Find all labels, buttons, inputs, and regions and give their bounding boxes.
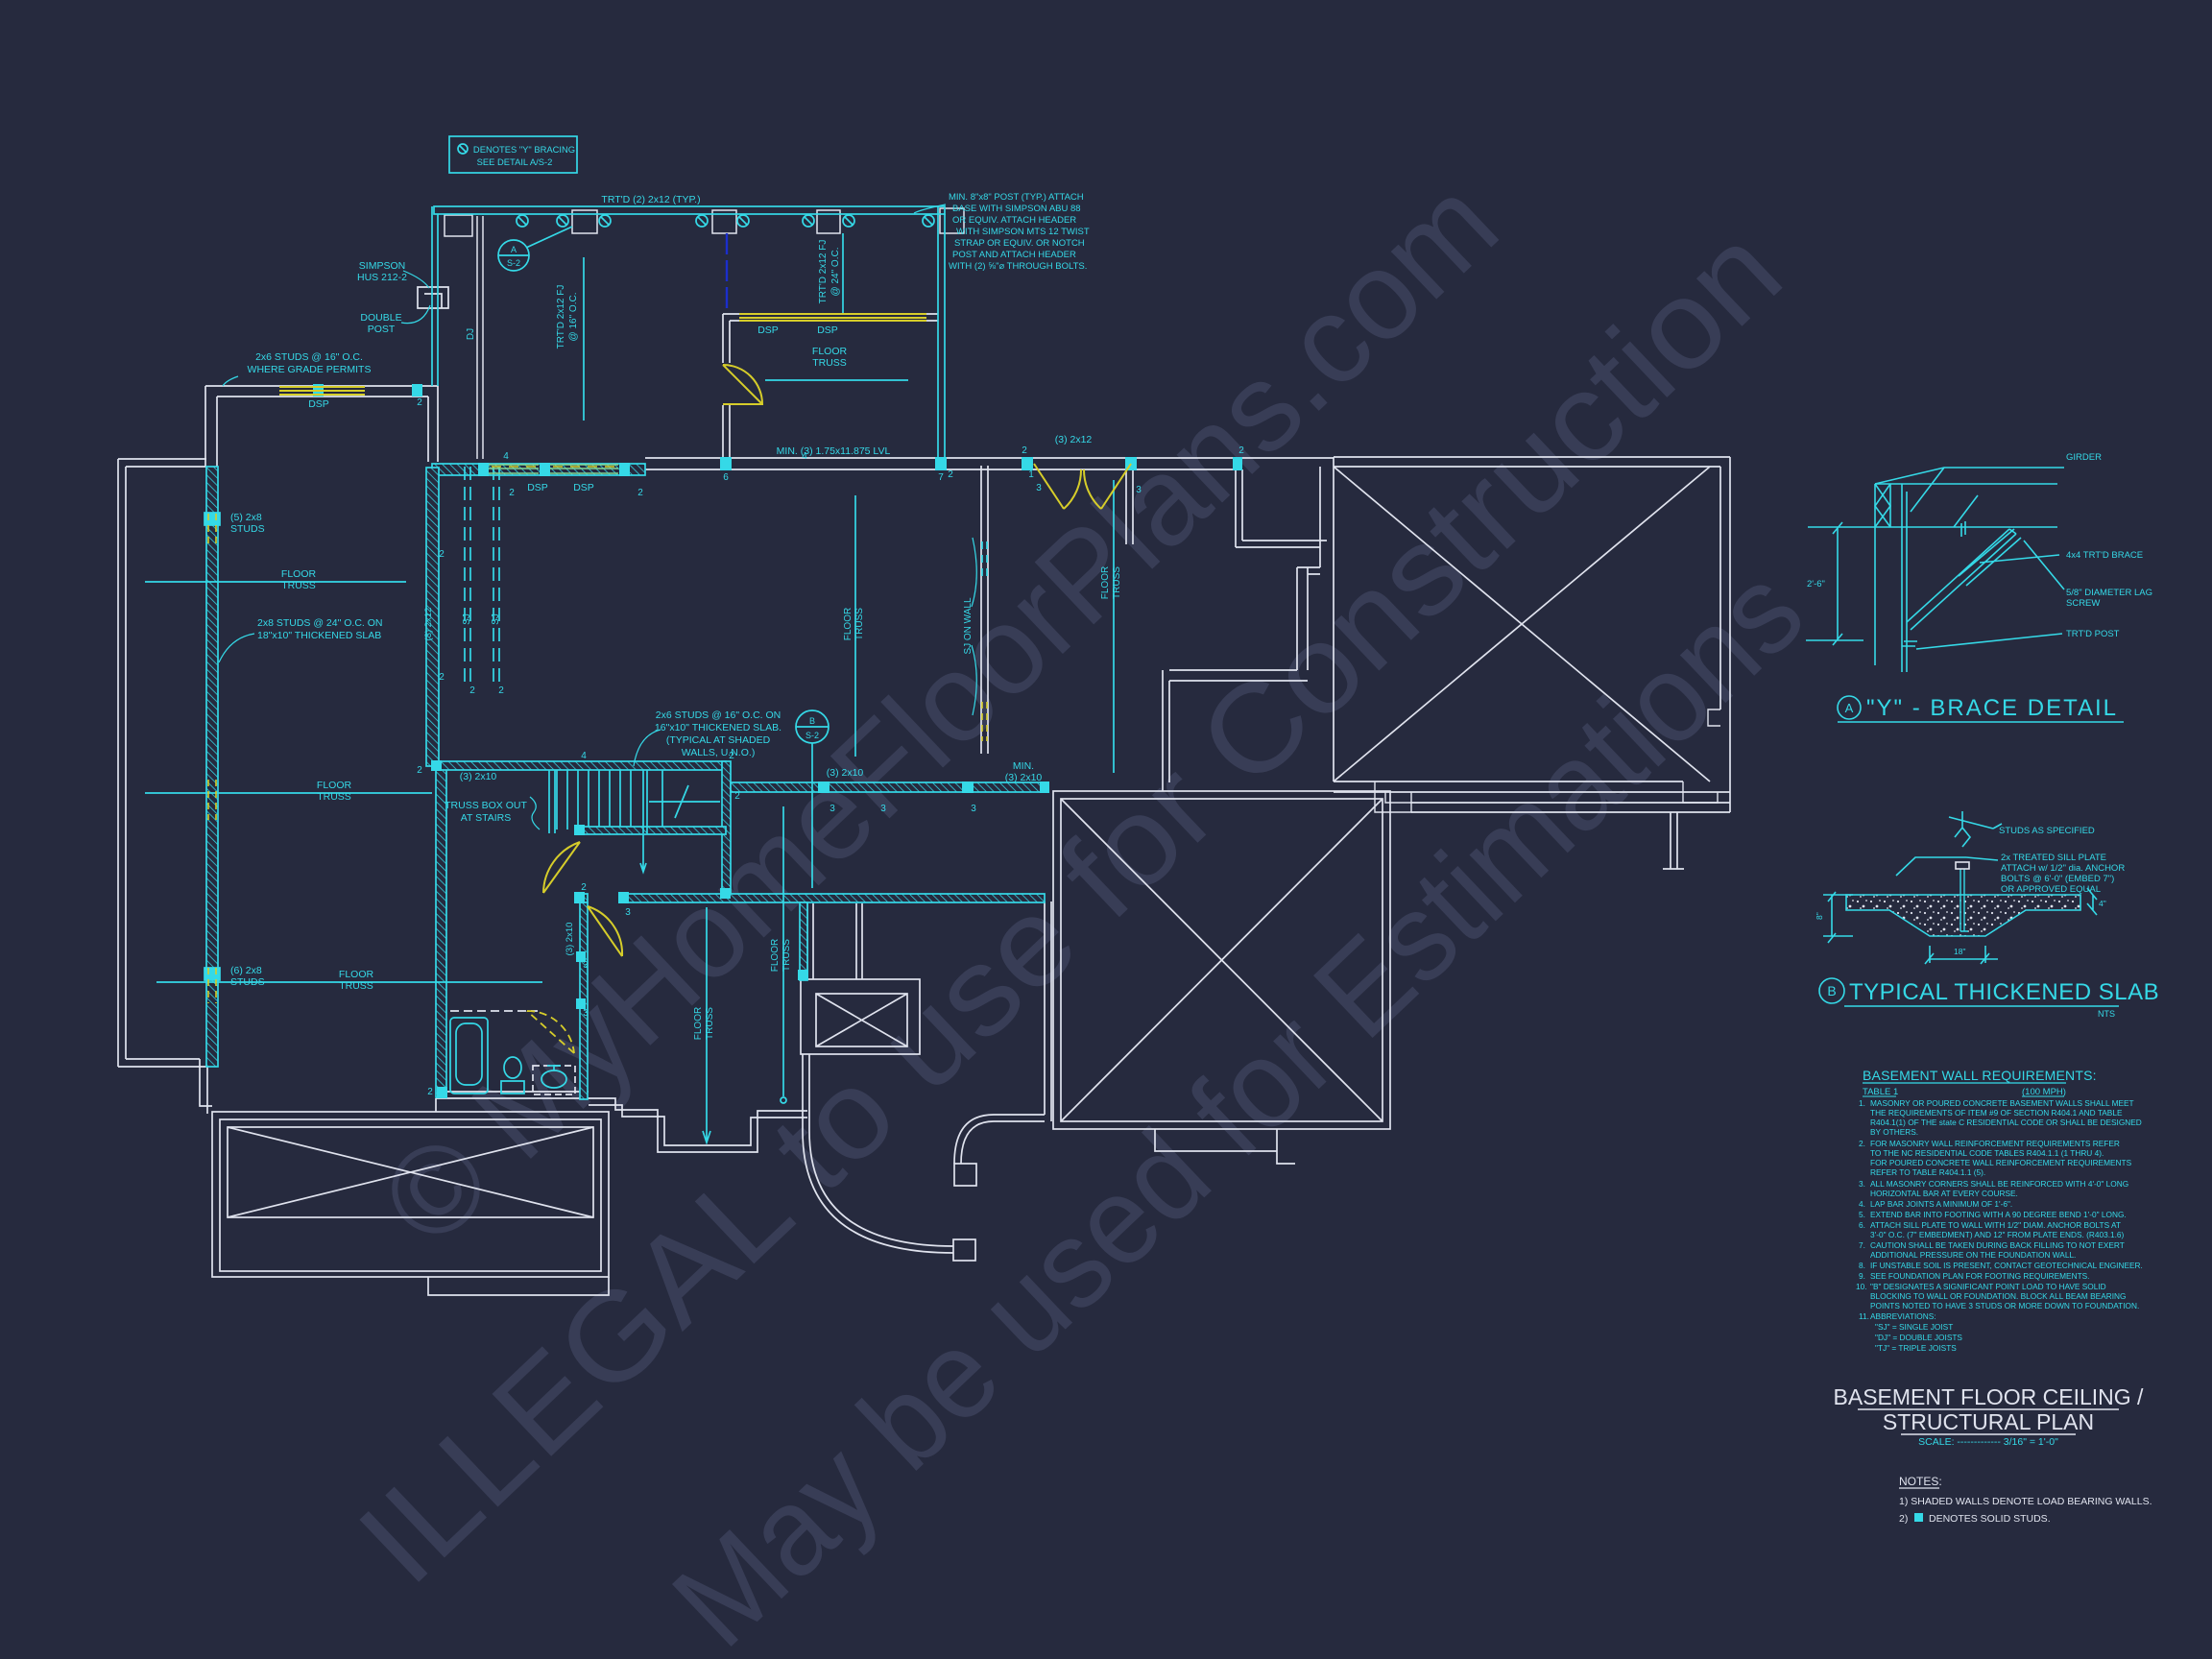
svg-text:2: 2 xyxy=(469,685,475,696)
svg-text:4": 4" xyxy=(2099,899,2106,908)
svg-text:3: 3 xyxy=(971,804,976,814)
svg-text:GIRDER: GIRDER xyxy=(2066,452,2102,463)
svg-text:WITH (2) ⅝"⌀ THROUGH BOLTS.: WITH (2) ⅝"⌀ THROUGH BOLTS. xyxy=(949,261,1087,272)
svg-text:@ 24" O.C.: @ 24" O.C. xyxy=(830,248,841,297)
svg-text:A: A xyxy=(511,245,517,254)
svg-text:FLOOR: FLOOR xyxy=(339,969,374,980)
svg-text:POINTS NOTED TO HAVE 3 STUDS O: POINTS NOTED TO HAVE 3 STUDS OR MORE DOW… xyxy=(1870,1301,2139,1310)
svg-text:(3) 2x12: (3) 2x12 xyxy=(423,608,434,641)
svg-text:18"x10" THICKENED SLAB: 18"x10" THICKENED SLAB xyxy=(257,630,381,641)
svg-text:6: 6 xyxy=(723,472,729,483)
svg-text:11.: 11. xyxy=(1859,1311,1869,1321)
svg-text:@ 16" O.C.: @ 16" O.C. xyxy=(568,293,579,342)
svg-text:(3) 2x10: (3) 2x10 xyxy=(460,771,497,782)
svg-text:REFER TO TABLE R404.1.1 (5).: REFER TO TABLE R404.1.1 (5). xyxy=(1870,1167,1985,1177)
svg-text:FLOOR: FLOOR xyxy=(317,780,352,791)
svg-text:4.: 4. xyxy=(1859,1199,1865,1209)
svg-text:2: 2 xyxy=(637,488,643,498)
svg-text:DOUBLE: DOUBLE xyxy=(360,312,401,324)
svg-text:WITH SIMPSON MTS 12 TWIST: WITH SIMPSON MTS 12 TWIST xyxy=(956,227,1090,237)
svg-text:7: 7 xyxy=(938,472,944,483)
svg-text:"SJ" = SINGLE JOIST: "SJ" = SINGLE JOIST xyxy=(1875,1322,1953,1332)
svg-text:FLOOR: FLOOR xyxy=(281,568,317,580)
svg-text:4: 4 xyxy=(503,451,509,462)
svg-text:8.: 8. xyxy=(1859,1261,1865,1270)
svg-text:MIN. 8"x8" POST (TYP.) ATTACH: MIN. 8"x8" POST (TYP.) ATTACH xyxy=(949,192,1084,203)
svg-text:(6) 2x8: (6) 2x8 xyxy=(230,965,262,976)
svg-text:ALL MASONRY CORNERS SHALL BE R: ALL MASONRY CORNERS SHALL BE REINFORCED … xyxy=(1870,1179,2128,1189)
svg-text:FLOOR: FLOOR xyxy=(693,1007,704,1040)
svg-text:2: 2 xyxy=(498,685,504,696)
svg-text:S-2: S-2 xyxy=(805,731,819,740)
svg-text:R404.1(1) OF THE state C RESID: R404.1(1) OF THE state C RESIDENTIAL COD… xyxy=(1870,1118,2142,1127)
svg-text:CAUTION SHALL BE TAKEN DURING: CAUTION SHALL BE TAKEN DURING BACK FILLI… xyxy=(1870,1240,2125,1250)
svg-text:(TYPICAL AT SHADED: (TYPICAL AT SHADED xyxy=(666,734,771,746)
svg-text:2: 2 xyxy=(1022,445,1027,456)
svg-text:2x6 STUDS @ 16" O.C.: 2x6 STUDS @ 16" O.C. xyxy=(255,351,363,363)
svg-text:DSP: DSP xyxy=(527,482,548,493)
svg-text:FOR POURED CONCRETE WALL REINF: FOR POURED CONCRETE WALL REINFORCEMENT R… xyxy=(1870,1158,2132,1167)
svg-text:THE REQUIREMENTS OF ITEM #9 OF: THE REQUIREMENTS OF ITEM #9 OF SECTION R… xyxy=(1870,1108,2123,1118)
svg-text:EXTEND BAR INTO FOOTING WITH A: EXTEND BAR INTO FOOTING WITH A 90 DEGREE… xyxy=(1870,1210,2127,1219)
svg-text:1.: 1. xyxy=(1859,1098,1865,1108)
svg-text:BY OTHERS.: BY OTHERS. xyxy=(1870,1127,1918,1137)
svg-text:S-2: S-2 xyxy=(507,258,520,268)
svg-text:BOLTS @ 6'-0" (EMBED 7"): BOLTS @ 6'-0" (EMBED 7") xyxy=(2001,874,2114,884)
svg-text:A: A xyxy=(1845,701,1854,715)
svg-text:2): 2) xyxy=(1899,1513,1908,1525)
svg-text:FLOOR: FLOOR xyxy=(770,939,781,972)
svg-text:FLOOR: FLOOR xyxy=(843,608,854,640)
svg-text:"TJ" = TRIPLE JOISTS: "TJ" = TRIPLE JOISTS xyxy=(1875,1343,1957,1353)
svg-text:TRT'D POST: TRT'D POST xyxy=(2066,629,2120,639)
svg-text:"DJ" = DOUBLE JOISTS: "DJ" = DOUBLE JOISTS xyxy=(1875,1333,1962,1342)
svg-text:STUDS AS SPECIFIED: STUDS AS SPECIFIED xyxy=(1999,826,2095,836)
svg-text:"B" DESIGNATES A SIGNIFICANT P: "B" DESIGNATES A SIGNIFICANT POINT LOAD … xyxy=(1870,1282,2106,1291)
svg-text:(5) 2x8: (5) 2x8 xyxy=(230,512,262,523)
svg-text:TRUSS BOX OUT: TRUSS BOX OUT xyxy=(445,800,527,811)
svg-text:TRUSS: TRUSS xyxy=(281,580,316,591)
svg-text:4x4 TRT'D BRACE: 4x4 TRT'D BRACE xyxy=(2066,550,2143,561)
svg-text:TRUSS: TRUSS xyxy=(1112,566,1122,599)
svg-text:2: 2 xyxy=(729,751,734,761)
svg-text:AT STAIRS: AT STAIRS xyxy=(461,812,512,824)
svg-text:TRUSS: TRUSS xyxy=(317,791,351,803)
svg-text:1: 1 xyxy=(1028,469,1034,480)
svg-text:DSP: DSP xyxy=(817,325,838,336)
svg-text:SEE FOUNDATION PLAN FOR FOOTIN: SEE FOUNDATION PLAN FOR FOOTING REQUIREM… xyxy=(1870,1271,2090,1281)
svg-text:DSP: DSP xyxy=(573,482,594,493)
svg-text:5/8" DIAMETER LAG: 5/8" DIAMETER LAG xyxy=(2066,588,2152,598)
svg-text:3: 3 xyxy=(1036,483,1042,493)
svg-text:POST AND ATTACH HEADER: POST AND ATTACH HEADER xyxy=(952,250,1076,260)
svg-text:SCALE: ------------- 3/16" = 1: SCALE: ------------- 3/16" = 1'-0" xyxy=(1918,1436,2058,1448)
svg-text:BASEMENT FLOOR CEILING /: BASEMENT FLOOR CEILING / xyxy=(1834,1384,2145,1409)
svg-text:2: 2 xyxy=(417,397,422,408)
svg-text:2x TREATED SILL PLATE: 2x TREATED SILL PLATE xyxy=(2001,853,2106,863)
svg-text:3: 3 xyxy=(829,804,835,814)
svg-text:2: 2 xyxy=(417,765,422,776)
svg-text:4: 4 xyxy=(581,751,587,761)
svg-text:3'-0" O.C. (7" EMBEDMENT) AND: 3'-0" O.C. (7" EMBEDMENT) AND 12" FROM P… xyxy=(1870,1230,2125,1239)
svg-text:(3) 2x12: (3) 2x12 xyxy=(1055,434,1093,445)
svg-text:18": 18" xyxy=(1954,947,1965,956)
svg-text:NTS: NTS xyxy=(2098,1009,2115,1019)
svg-text:DSP: DSP xyxy=(308,398,329,410)
svg-text:OR APPROVED EQUAL: OR APPROVED EQUAL xyxy=(2001,884,2101,895)
svg-text:3: 3 xyxy=(625,907,631,918)
svg-text:2: 2 xyxy=(509,488,515,498)
svg-text:TO THE NC RESIDENTIAL CODE TAB: TO THE NC RESIDENTIAL CODE TABLES R404.1… xyxy=(1870,1148,2104,1158)
svg-text:HORIZONTAL BAR AT EVERY COURSE: HORIZONTAL BAR AT EVERY COURSE. xyxy=(1870,1189,2018,1198)
svg-text:16"x10" THICKENED SLAB.: 16"x10" THICKENED SLAB. xyxy=(655,722,781,733)
svg-text:MIN.: MIN. xyxy=(1013,760,1034,772)
svg-text:HUS 212-2: HUS 212-2 xyxy=(357,272,407,283)
svg-text:2: 2 xyxy=(439,672,445,683)
svg-text:STRUCTURAL PLAN: STRUCTURAL PLAN xyxy=(1883,1409,2094,1434)
svg-text:TRT'D (2) 2x12 (TYP.): TRT'D (2) 2x12 (TYP.) xyxy=(601,194,700,205)
svg-text:FLOOR: FLOOR xyxy=(1100,566,1111,599)
svg-text:2: 2 xyxy=(439,549,445,560)
svg-text:2'-6": 2'-6" xyxy=(1807,579,1825,589)
svg-text:STRAP OR EQUIV. OR NOTCH: STRAP OR EQUIV. OR NOTCH xyxy=(954,238,1085,249)
svg-text:DENOTES SOLID STUDS.: DENOTES SOLID STUDS. xyxy=(1929,1513,2051,1525)
svg-text:2x8 STUDS @ 24" O.C. ON: 2x8 STUDS @ 24" O.C. ON xyxy=(257,617,383,629)
svg-text:OR EQUIV. ATTACH HEADER: OR EQUIV. ATTACH HEADER xyxy=(952,215,1076,226)
svg-text:SCREW: SCREW xyxy=(2066,598,2100,609)
svg-text:DENOTES "Y" BRACING: DENOTES "Y" BRACING xyxy=(473,144,575,155)
svg-text:3: 3 xyxy=(583,960,589,971)
svg-text:1) SHADED WALLS DENOTE LOAD BE: 1) SHADED WALLS DENOTE LOAD BEARING WALL… xyxy=(1899,1496,2152,1507)
svg-text:DSP: DSP xyxy=(757,325,779,336)
svg-text:(3) 2x10: (3) 2x10 xyxy=(1005,772,1043,783)
svg-text:9.: 9. xyxy=(1859,1271,1865,1281)
svg-text:SIMPSON: SIMPSON xyxy=(359,260,405,272)
svg-text:2: 2 xyxy=(581,882,587,893)
svg-text:(3) 2x10: (3) 2x10 xyxy=(565,923,575,956)
svg-text:10.: 10. xyxy=(1856,1282,1867,1291)
svg-text:SJ: SJ xyxy=(491,613,501,625)
svg-text:3: 3 xyxy=(880,804,886,814)
svg-text:BLOCKING TO WALL OR FOUNDATION: BLOCKING TO WALL OR FOUNDATION. BLOCK AL… xyxy=(1870,1291,2126,1301)
svg-text:STUDS: STUDS xyxy=(230,976,265,988)
svg-text:(100 MPH): (100 MPH) xyxy=(2022,1087,2066,1097)
svg-text:3.: 3. xyxy=(1859,1179,1865,1189)
svg-text:(3) 2x10: (3) 2x10 xyxy=(827,767,864,779)
svg-text:2: 2 xyxy=(427,1087,433,1097)
svg-text:MIN. (3) 1.75x11.875 LVL: MIN. (3) 1.75x11.875 LVL xyxy=(777,445,891,457)
svg-text:2: 2 xyxy=(734,791,740,802)
svg-text:FOR MASONRY WALL REINFORCEMENT: FOR MASONRY WALL REINFORCEMENT REQUIREME… xyxy=(1870,1139,2120,1148)
svg-text:2: 2 xyxy=(1238,445,1244,456)
svg-text:4: 4 xyxy=(802,451,807,462)
svg-text:WALLS, U.N.O.): WALLS, U.N.O.) xyxy=(682,747,756,758)
svg-text:"Y" - BRACE DETAIL: "Y" - BRACE DETAIL xyxy=(1866,695,2118,721)
svg-text:TRUSS: TRUSS xyxy=(339,980,373,992)
svg-text:TRT'D 2x12 FJ: TRT'D 2x12 FJ xyxy=(556,285,566,349)
svg-text:TABLE 1: TABLE 1 xyxy=(1863,1087,1898,1097)
svg-text:POST: POST xyxy=(368,324,396,335)
svg-text:ABBREVIATIONS:: ABBREVIATIONS: xyxy=(1870,1311,1936,1321)
svg-text:FLOOR: FLOOR xyxy=(812,346,848,357)
svg-text:STUDS: STUDS xyxy=(230,523,265,535)
svg-text:2.: 2. xyxy=(1859,1139,1865,1148)
svg-text:B: B xyxy=(809,716,815,726)
svg-text:TYPICAL THICKENED SLAB: TYPICAL THICKENED SLAB xyxy=(1849,979,2159,1005)
svg-text:WHERE GRADE PERMITS: WHERE GRADE PERMITS xyxy=(248,364,372,375)
svg-text:2x6 STUDS @ 16" O.C. ON: 2x6 STUDS @ 16" O.C. ON xyxy=(656,709,781,721)
svg-text:BASE WITH SIMPSON ABU 88: BASE WITH SIMPSON ABU 88 xyxy=(952,204,1081,214)
svg-text:SJ ON WALL: SJ ON WALL xyxy=(963,597,974,655)
svg-text:SJ: SJ xyxy=(462,613,472,625)
svg-text:TRUSS: TRUSS xyxy=(854,608,865,640)
svg-text:SEE DETAIL A/S-2: SEE DETAIL A/S-2 xyxy=(477,156,553,167)
svg-text:IF UNSTABLE SOIL IS PRESENT, C: IF UNSTABLE SOIL IS PRESENT, CONTACT GEO… xyxy=(1870,1261,2143,1270)
svg-text:MASONRY OR POURED CONCRETE BAS: MASONRY OR POURED CONCRETE BASEMENT WALL… xyxy=(1870,1098,2134,1108)
svg-text:5.: 5. xyxy=(1859,1210,1865,1219)
svg-text:3: 3 xyxy=(583,1008,589,1019)
svg-text:ADDITIONAL PRESSURE ON THE FOU: ADDITIONAL PRESSURE ON THE FOUNDATION WA… xyxy=(1870,1250,2076,1260)
svg-text:TRUSS: TRUSS xyxy=(705,1007,715,1040)
svg-text:3: 3 xyxy=(1136,485,1142,495)
svg-text:2: 2 xyxy=(948,469,953,480)
svg-text:ATTACH w/ 1/2" dia. ANCHOR: ATTACH w/ 1/2" dia. ANCHOR xyxy=(2001,863,2125,874)
svg-text:TRUSS: TRUSS xyxy=(812,357,847,369)
svg-text:6.: 6. xyxy=(1859,1220,1865,1230)
svg-text:BASEMENT WALL REQUIREMENTS:: BASEMENT WALL REQUIREMENTS: xyxy=(1863,1068,2097,1083)
svg-text:7.: 7. xyxy=(1859,1240,1865,1250)
svg-text:ATTACH SILL PLATE TO WALL WITH: ATTACH SILL PLATE TO WALL WITH 1/2" DIAM… xyxy=(1870,1220,2121,1230)
svg-text:8": 8" xyxy=(1815,912,1824,920)
svg-text:DJ: DJ xyxy=(466,328,476,340)
svg-text:LAP BAR JOINTS A MINIMUM OF 1': LAP BAR JOINTS A MINIMUM OF 1'-6". xyxy=(1870,1199,2012,1209)
svg-text:TRUSS: TRUSS xyxy=(781,939,792,972)
svg-text:NOTES:: NOTES: xyxy=(1899,1475,1942,1488)
svg-text:B: B xyxy=(1827,983,1836,998)
svg-text:TRT'D 2x12 FJ: TRT'D 2x12 FJ xyxy=(818,240,829,304)
